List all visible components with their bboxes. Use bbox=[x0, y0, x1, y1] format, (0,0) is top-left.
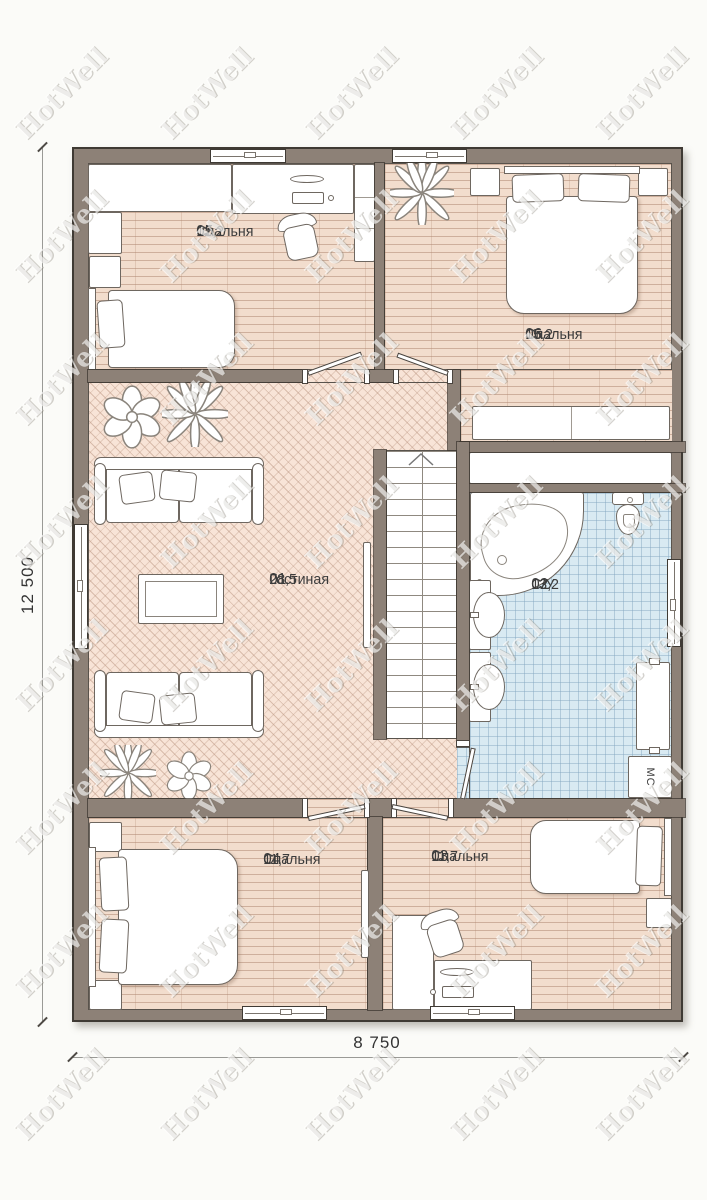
nightstand bbox=[638, 168, 668, 196]
width-dimension-label: 8 750 bbox=[327, 1033, 427, 1053]
watermark-text: HotWell bbox=[9, 41, 115, 147]
room-area: 28,5 bbox=[269, 570, 297, 589]
desk-lamp-icon bbox=[440, 968, 474, 976]
door-jamb bbox=[448, 798, 454, 818]
sofa bbox=[94, 670, 264, 738]
mouse-icon bbox=[430, 989, 436, 995]
single-bed bbox=[88, 288, 235, 370]
bathroom-cabinet bbox=[636, 662, 670, 750]
floor-plan: МС bbox=[72, 147, 683, 1022]
room-area: 12,2 bbox=[196, 222, 224, 241]
double-bed bbox=[504, 166, 640, 316]
south-corridor-wall bbox=[88, 799, 307, 817]
bathroom-west-wall bbox=[457, 442, 469, 747]
door-jamb bbox=[364, 369, 370, 384]
nightstand bbox=[89, 256, 121, 288]
vertical-dimension-line bbox=[42, 147, 43, 1022]
partition-wall bbox=[375, 163, 384, 370]
wardrobe bbox=[472, 406, 670, 440]
washing-machine: МС bbox=[628, 756, 672, 798]
room-area: 11,7 bbox=[263, 850, 290, 869]
room-area: 13,2 bbox=[531, 575, 559, 594]
wardrobe bbox=[88, 164, 232, 212]
shelving bbox=[354, 164, 375, 262]
bedroom-06-south-wall bbox=[460, 442, 685, 452]
keyboard-icon bbox=[292, 192, 324, 204]
partition-wall bbox=[368, 817, 382, 1010]
window bbox=[74, 524, 88, 649]
single-bed bbox=[530, 818, 672, 896]
desk bbox=[232, 164, 354, 214]
window bbox=[210, 149, 286, 163]
height-dimension-label: 12 500 bbox=[18, 530, 38, 640]
keyboard-icon bbox=[442, 986, 474, 998]
palm-plant-icon bbox=[100, 745, 156, 801]
stairs-west-wall bbox=[374, 450, 386, 739]
window bbox=[242, 1006, 327, 1020]
toilet bbox=[612, 492, 646, 538]
watermark-text: HotWell bbox=[154, 41, 260, 147]
door-jamb bbox=[302, 798, 308, 818]
room-area: 15,2 bbox=[525, 325, 553, 344]
horizontal-dimension-line bbox=[72, 1057, 683, 1058]
south-corridor-wall bbox=[449, 799, 685, 817]
door-jamb bbox=[393, 369, 399, 384]
palm-plant-icon bbox=[390, 161, 454, 225]
staircase bbox=[386, 450, 457, 739]
faucet-icon bbox=[470, 684, 479, 690]
cabinet bbox=[88, 212, 122, 254]
closet bbox=[469, 452, 672, 484]
floor-plan-sheet: 12 500 8 750 bbox=[0, 0, 707, 1200]
mouse-icon bbox=[328, 195, 334, 201]
tv bbox=[363, 542, 371, 648]
watermark-text: HotWell bbox=[299, 41, 405, 147]
palm-plant-icon bbox=[162, 381, 228, 447]
sofa bbox=[94, 457, 264, 525]
hall-north-wall bbox=[88, 370, 307, 382]
double-bed bbox=[88, 847, 238, 987]
watermark-text: HotWell bbox=[444, 41, 550, 147]
door-jamb bbox=[456, 740, 470, 747]
watermark-text: HotWell bbox=[589, 41, 695, 147]
window bbox=[392, 149, 467, 163]
stairs-direction-arrow-icon bbox=[408, 453, 434, 466]
bathroom-north-wall bbox=[457, 484, 685, 492]
washing-machine-label: МС bbox=[630, 756, 670, 798]
desk-lamp-icon bbox=[290, 175, 324, 183]
room-area: 11,7 bbox=[431, 847, 458, 866]
nightstand bbox=[470, 168, 500, 196]
tv bbox=[361, 870, 369, 958]
flower-plant-icon bbox=[100, 385, 164, 449]
window bbox=[667, 559, 681, 647]
coffee-table bbox=[138, 574, 224, 624]
nightstand bbox=[646, 898, 672, 928]
faucet-icon bbox=[470, 612, 479, 618]
window bbox=[430, 1006, 515, 1020]
flower-plant-icon bbox=[164, 751, 214, 801]
